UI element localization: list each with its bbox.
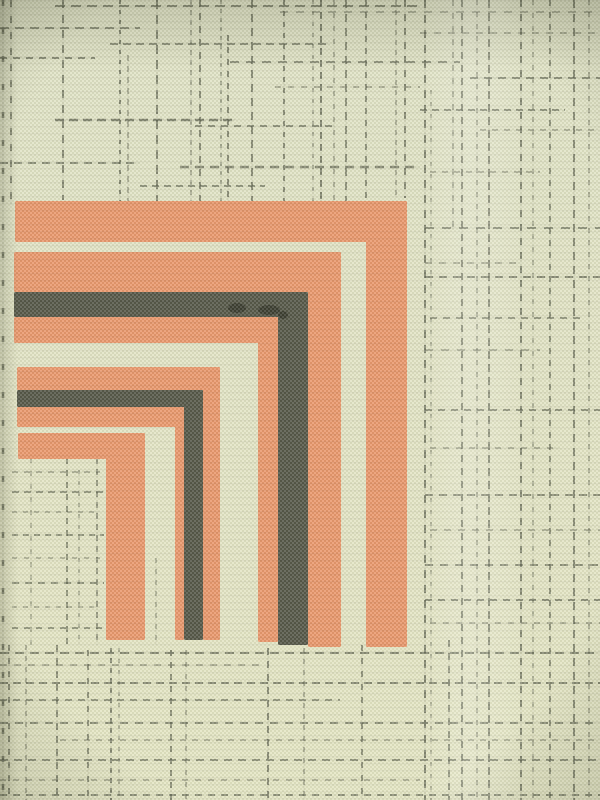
fabric-photo (0, 0, 600, 800)
fabric-swatch-svg (0, 0, 600, 800)
lighting-overlay (0, 0, 600, 800)
